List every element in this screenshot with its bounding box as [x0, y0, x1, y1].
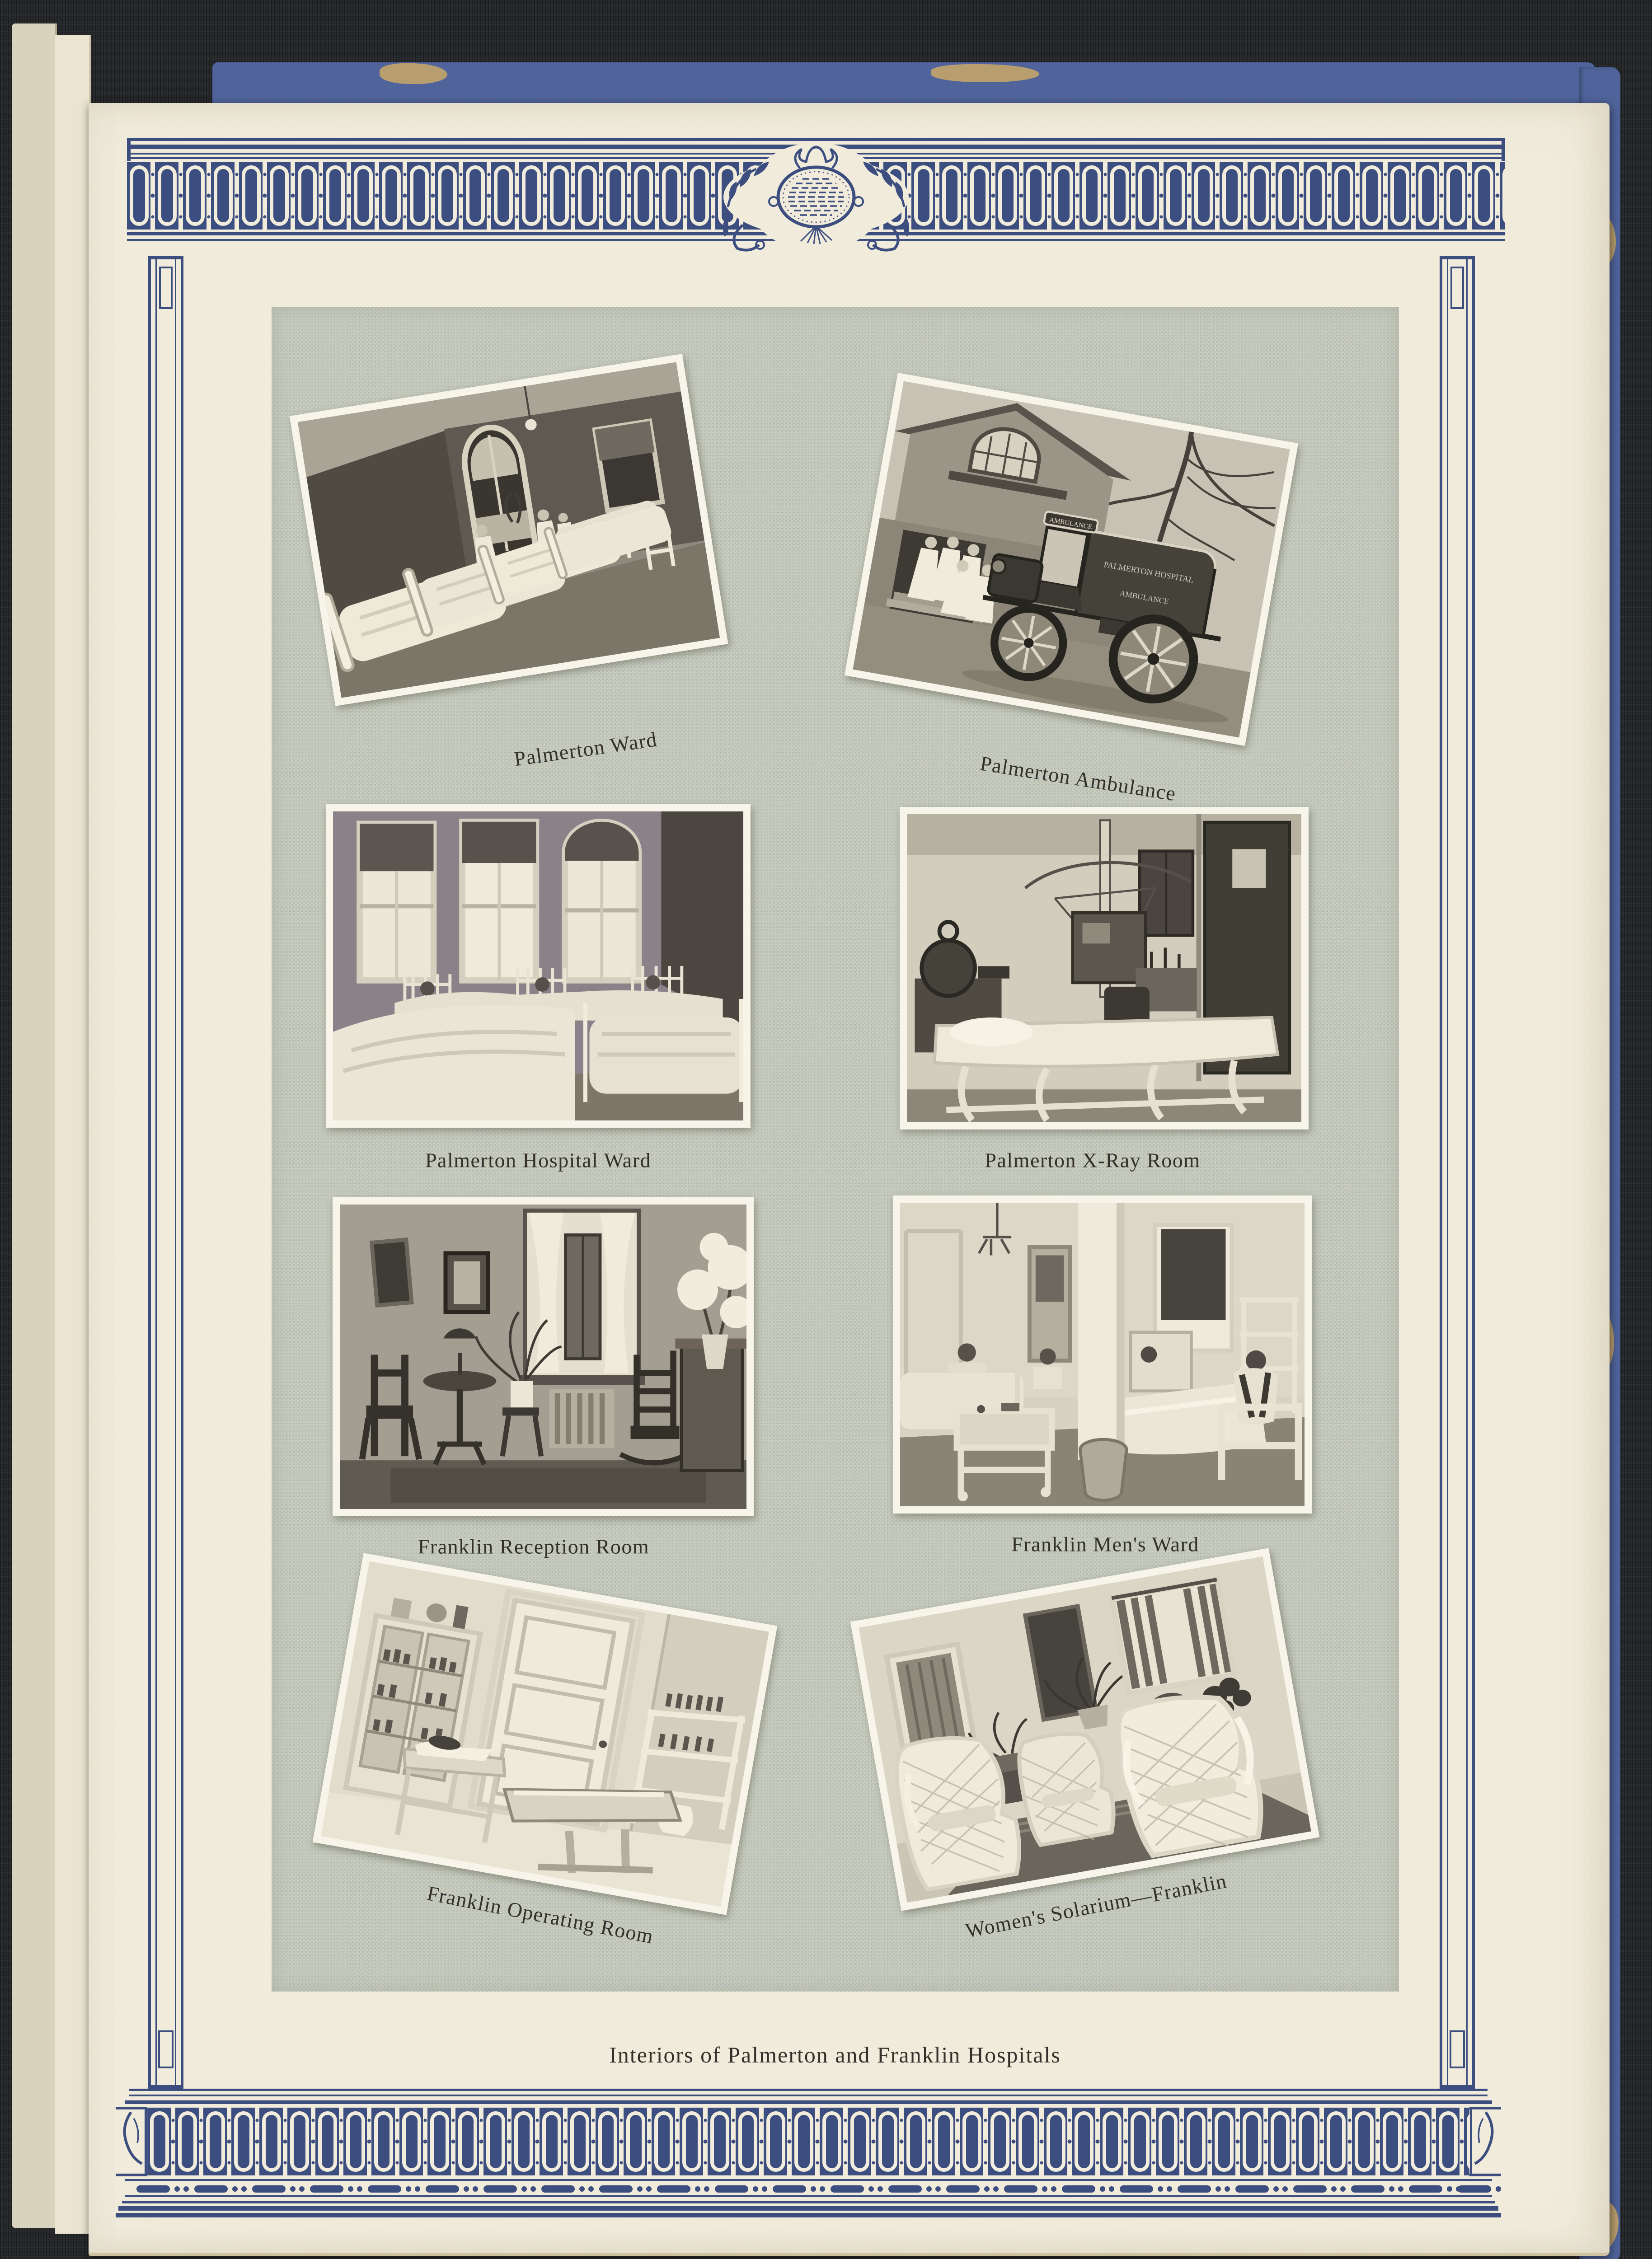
- left-border-pilaster: [148, 256, 183, 2089]
- photo-franklin-reception-room: [333, 1197, 754, 1516]
- page-background: Palmerton Ward: [89, 103, 1610, 2256]
- cover-tear: [380, 63, 447, 84]
- photo-palmerton-hospital-ward: [326, 804, 751, 1128]
- footer-caption: Interiors of Palmerton and Franklin Hosp…: [609, 2042, 1061, 2068]
- corner-acanthus-right: [1469, 2107, 1501, 2176]
- bottom-border-ornament: [116, 2089, 1501, 2217]
- photo-franklin-mens-ward: [893, 1195, 1312, 1514]
- caption-franklin-mens-ward: Franklin Men's Ward: [1011, 1533, 1199, 1556]
- caption-franklin-reception-room: Franklin Reception Room: [418, 1535, 649, 1559]
- top-border-ornament: [127, 138, 1505, 256]
- caption-palmerton-hospital-ward: Palmerton Hospital Ward: [425, 1148, 651, 1172]
- corner-acanthus-left: [116, 2107, 147, 2176]
- caption-palmerton-xray-room: Palmerton X-Ray Room: [985, 1148, 1200, 1172]
- photo-palmerton-ward: [290, 354, 728, 706]
- photo-palmerton-xray-room: [900, 807, 1309, 1129]
- page-edges-sliver: [12, 23, 57, 2228]
- scanned-book-page: Palmerton Ward: [0, 0, 1652, 2259]
- page-edges-sliver-inner: [55, 35, 91, 2234]
- right-border-pilaster: [1440, 256, 1475, 2089]
- cover-tear: [931, 64, 1039, 82]
